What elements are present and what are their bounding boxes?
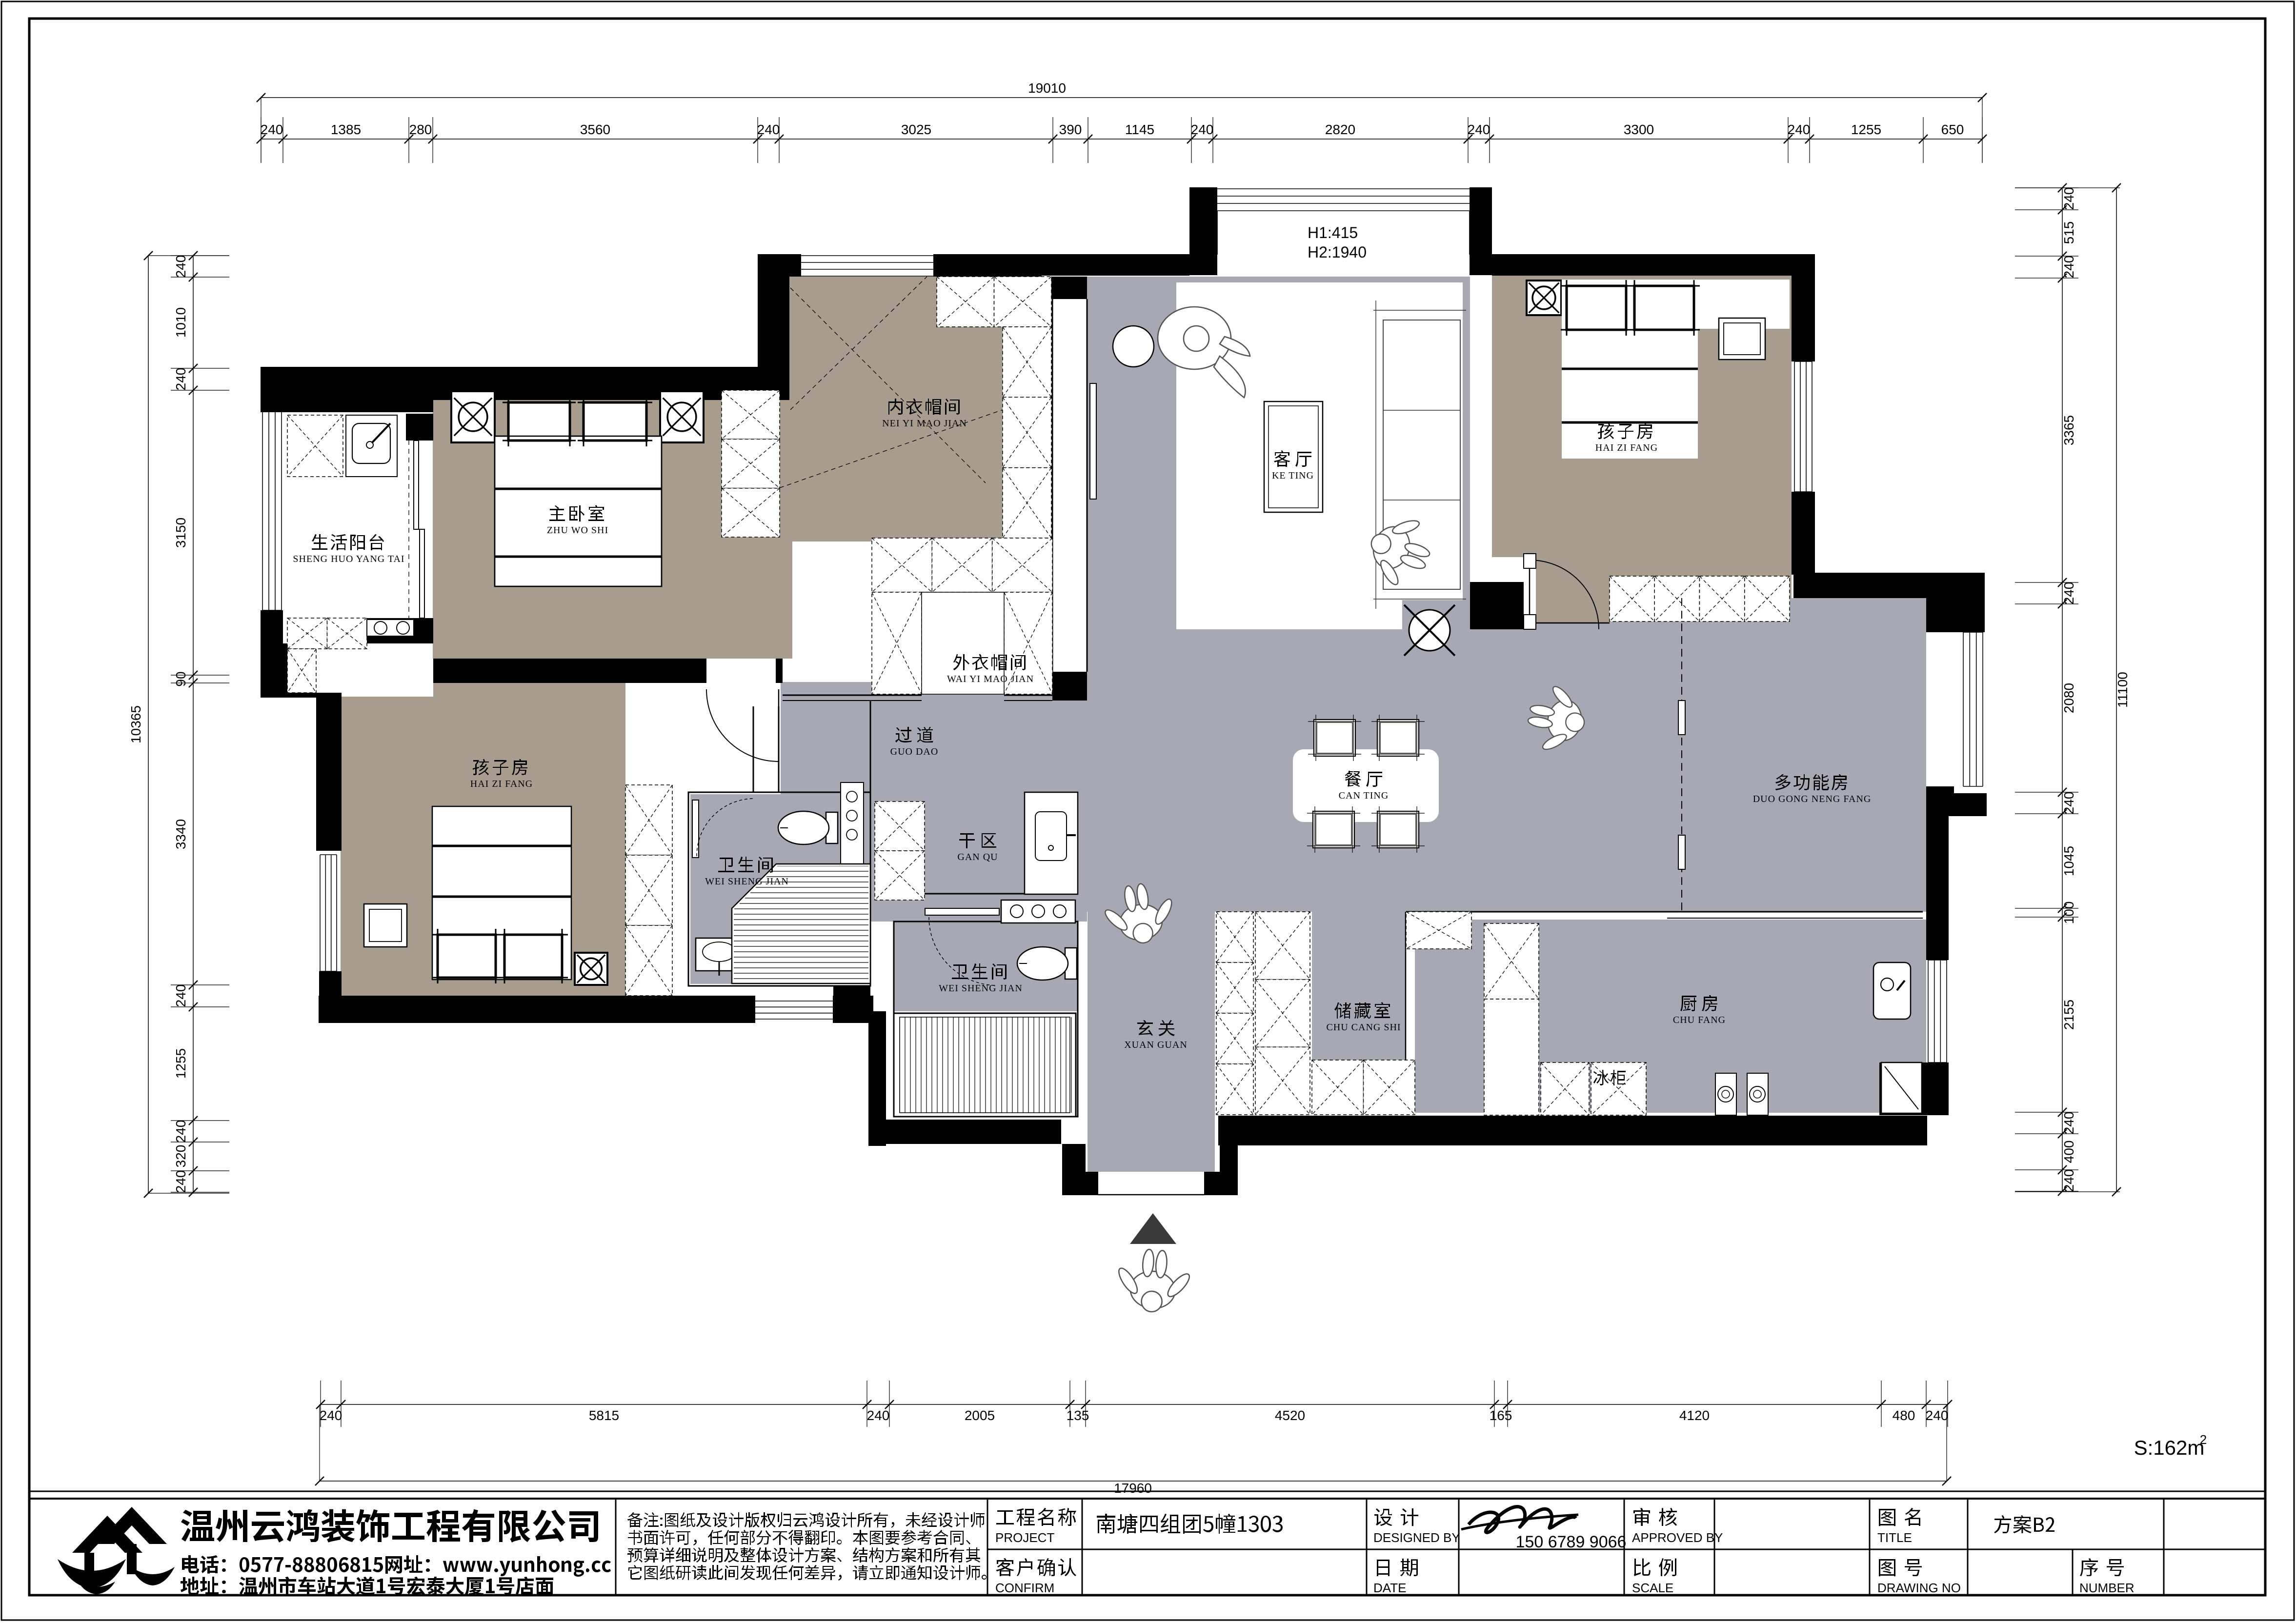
svg-text:DESIGNED BY: DESIGNED BY <box>1373 1530 1460 1545</box>
svg-text:135: 135 <box>1067 1408 1089 1423</box>
svg-text:240: 240 <box>261 122 283 137</box>
svg-text:165: 165 <box>1490 1408 1512 1423</box>
svg-text:10365: 10365 <box>128 705 143 743</box>
svg-text:515: 515 <box>2061 221 2076 244</box>
svg-text:240: 240 <box>173 255 188 278</box>
svg-text:240: 240 <box>173 1170 188 1193</box>
svg-text:H2:1940: H2:1940 <box>1308 243 1367 261</box>
svg-text:240: 240 <box>2061 187 2076 210</box>
svg-text:19010: 19010 <box>1028 80 1066 96</box>
svg-text:5815: 5815 <box>589 1408 619 1423</box>
svg-text:S:162m: S:162m <box>2134 1436 2205 1459</box>
svg-text:KE TING: KE TING <box>1272 470 1314 481</box>
svg-text:SCALE: SCALE <box>1632 1581 1673 1595</box>
svg-text:240: 240 <box>2061 1112 2076 1135</box>
svg-text:2820: 2820 <box>1325 122 1355 137</box>
svg-text:240: 240 <box>2061 256 2076 279</box>
svg-text:3560: 3560 <box>580 122 610 137</box>
svg-text:11100: 11100 <box>2115 672 2130 708</box>
svg-text:CHU CANG SHI: CHU CANG SHI <box>1326 1022 1401 1033</box>
svg-text:WEI SHENG JIAN: WEI SHENG JIAN <box>939 983 1023 994</box>
svg-text:3365: 3365 <box>2061 415 2076 445</box>
svg-text:WAI YI MAO JIAN: WAI YI MAO JIAN <box>947 674 1034 684</box>
svg-text:400: 400 <box>2061 1141 2076 1163</box>
svg-text:1255: 1255 <box>1851 122 1881 137</box>
svg-text:DUO GONG NENG FANG: DUO GONG NENG FANG <box>1753 794 1872 804</box>
svg-text:TITLE: TITLE <box>1877 1530 1912 1545</box>
svg-text:4120: 4120 <box>1679 1408 1710 1423</box>
svg-text:1255: 1255 <box>173 1048 188 1079</box>
svg-text:240: 240 <box>2061 792 2076 815</box>
svg-text:1385: 1385 <box>331 122 361 137</box>
svg-text:NUMBER: NUMBER <box>2079 1581 2135 1595</box>
svg-text:DRAWING NO: DRAWING NO <box>1877 1581 1961 1595</box>
svg-text:240: 240 <box>1788 122 1811 137</box>
svg-text:1145: 1145 <box>1125 122 1154 137</box>
svg-text:GUO DAO: GUO DAO <box>890 746 939 757</box>
svg-text:240: 240 <box>2061 1169 2076 1192</box>
svg-text:PROJECT: PROJECT <box>995 1530 1054 1545</box>
svg-text:240: 240 <box>1468 122 1490 137</box>
svg-text:1045: 1045 <box>2061 846 2076 876</box>
svg-text:240: 240 <box>757 122 780 137</box>
svg-text:GAN QU: GAN QU <box>957 852 998 862</box>
svg-text:650: 650 <box>1941 122 1964 137</box>
svg-text:240: 240 <box>173 368 188 391</box>
svg-text:240: 240 <box>867 1408 890 1423</box>
svg-text:3025: 3025 <box>901 122 931 137</box>
svg-text:1010: 1010 <box>173 307 188 338</box>
svg-text:240: 240 <box>320 1408 342 1423</box>
svg-text:150 6789 9066: 150 6789 9066 <box>1516 1533 1627 1551</box>
svg-text:3300: 3300 <box>1624 122 1654 137</box>
svg-text:WEI SHENG JIAN: WEI SHENG JIAN <box>705 876 789 887</box>
svg-text:90: 90 <box>173 671 188 686</box>
svg-text:ZHU WO SHI: ZHU WO SHI <box>547 525 608 536</box>
svg-text:240: 240 <box>173 1120 188 1143</box>
svg-text:17960: 17960 <box>1114 1481 1152 1496</box>
svg-text:2155: 2155 <box>2061 1000 2076 1030</box>
svg-text:CAN TING: CAN TING <box>1339 790 1389 801</box>
svg-text:XUAN GUAN: XUAN GUAN <box>1124 1040 1188 1050</box>
svg-text:HAI ZI FANG: HAI ZI FANG <box>470 779 533 789</box>
svg-text:SHENG HUO YANG TAI: SHENG HUO YANG TAI <box>293 554 404 564</box>
svg-text:280: 280 <box>409 122 432 137</box>
svg-text:2: 2 <box>2200 1432 2207 1447</box>
svg-text:390: 390 <box>1059 122 1082 137</box>
svg-text:480: 480 <box>1893 1408 1915 1423</box>
svg-text:320: 320 <box>173 1145 188 1168</box>
svg-text:240: 240 <box>173 984 188 1007</box>
svg-text:100: 100 <box>2061 902 2076 924</box>
svg-text:240: 240 <box>1191 122 1214 137</box>
svg-text:3150: 3150 <box>173 518 188 548</box>
svg-text:H1:415: H1:415 <box>1308 224 1358 241</box>
svg-text:CONFIRM: CONFIRM <box>995 1581 1054 1595</box>
svg-text:240: 240 <box>1926 1408 1949 1423</box>
svg-text:DATE: DATE <box>1373 1581 1406 1595</box>
svg-text:HAI ZI FANG: HAI ZI FANG <box>1595 442 1658 453</box>
svg-text:240: 240 <box>2061 582 2076 605</box>
svg-text:2080: 2080 <box>2061 683 2076 713</box>
svg-text:4520: 4520 <box>1275 1408 1305 1423</box>
svg-text:APPROVED BY: APPROVED BY <box>1632 1530 1723 1545</box>
svg-text:NEI YI MAO JIAN: NEI YI MAO JIAN <box>882 418 967 429</box>
svg-text:3340: 3340 <box>173 819 188 849</box>
svg-text:2005: 2005 <box>965 1408 995 1423</box>
svg-text:CHU FANG: CHU FANG <box>1673 1015 1726 1025</box>
